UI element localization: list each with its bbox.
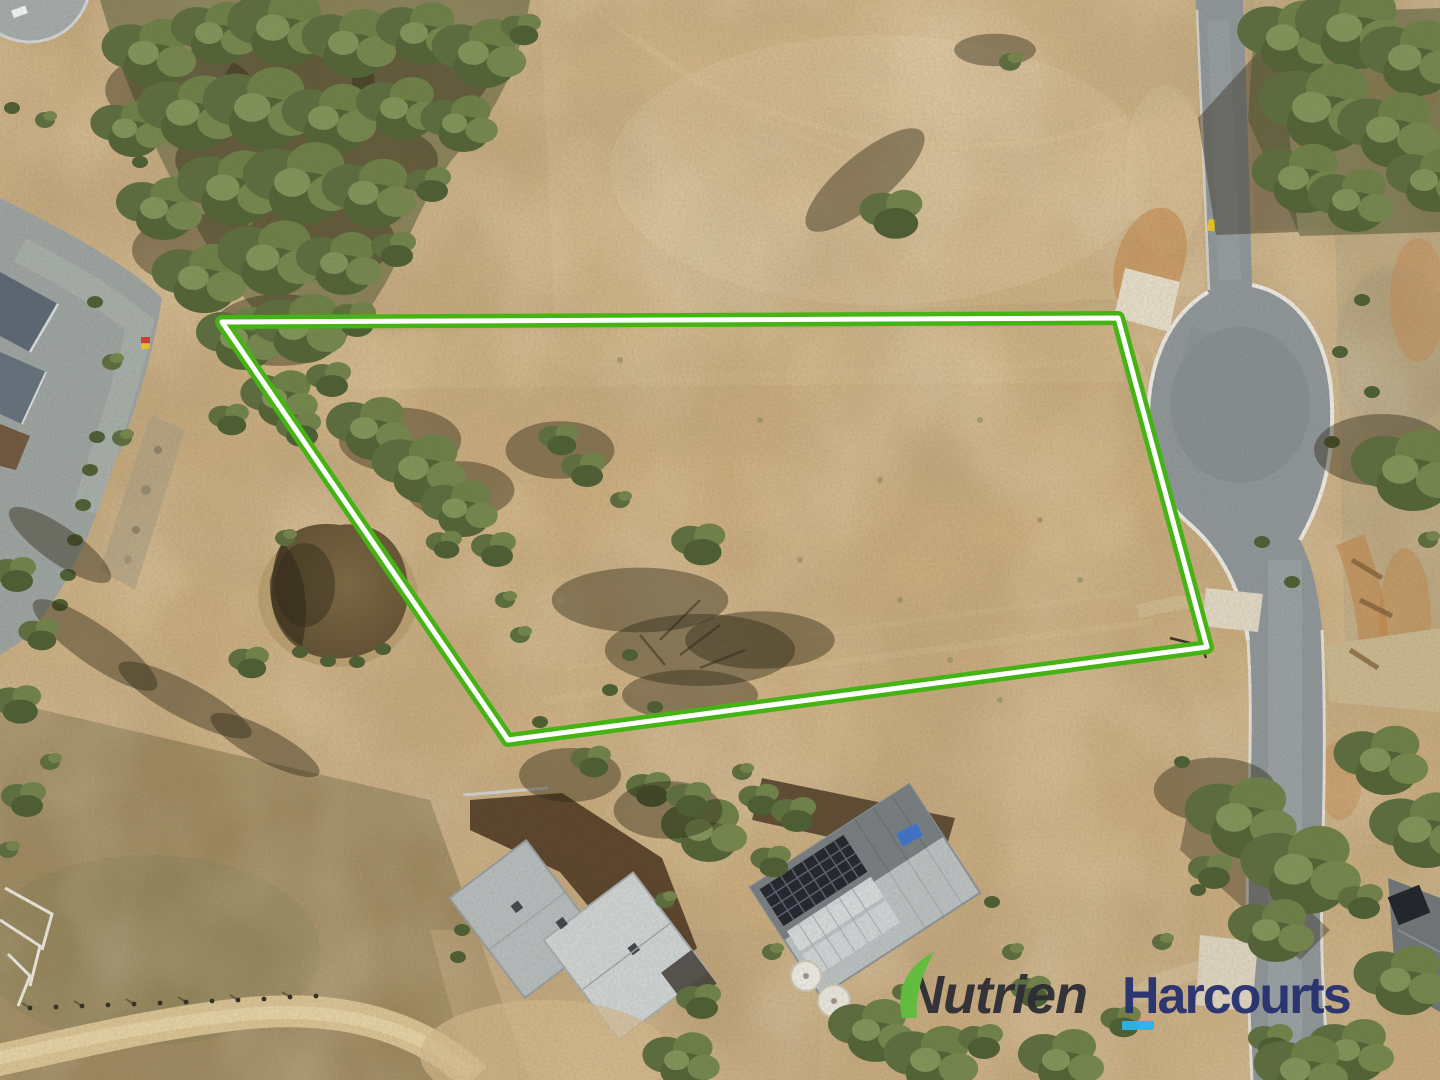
aerial-photo-canvas: Nutrien Harcourts: [0, 0, 1440, 1080]
aerial-photo: Nutrien Harcourts: [0, 0, 1440, 1080]
watermark-harcourts: Harcourts: [1122, 967, 1350, 1025]
watermark-nutrien: Nutrien: [905, 965, 1087, 1025]
photo-grain: [0, 0, 1440, 1080]
harcourts-underline: [1122, 1021, 1154, 1030]
